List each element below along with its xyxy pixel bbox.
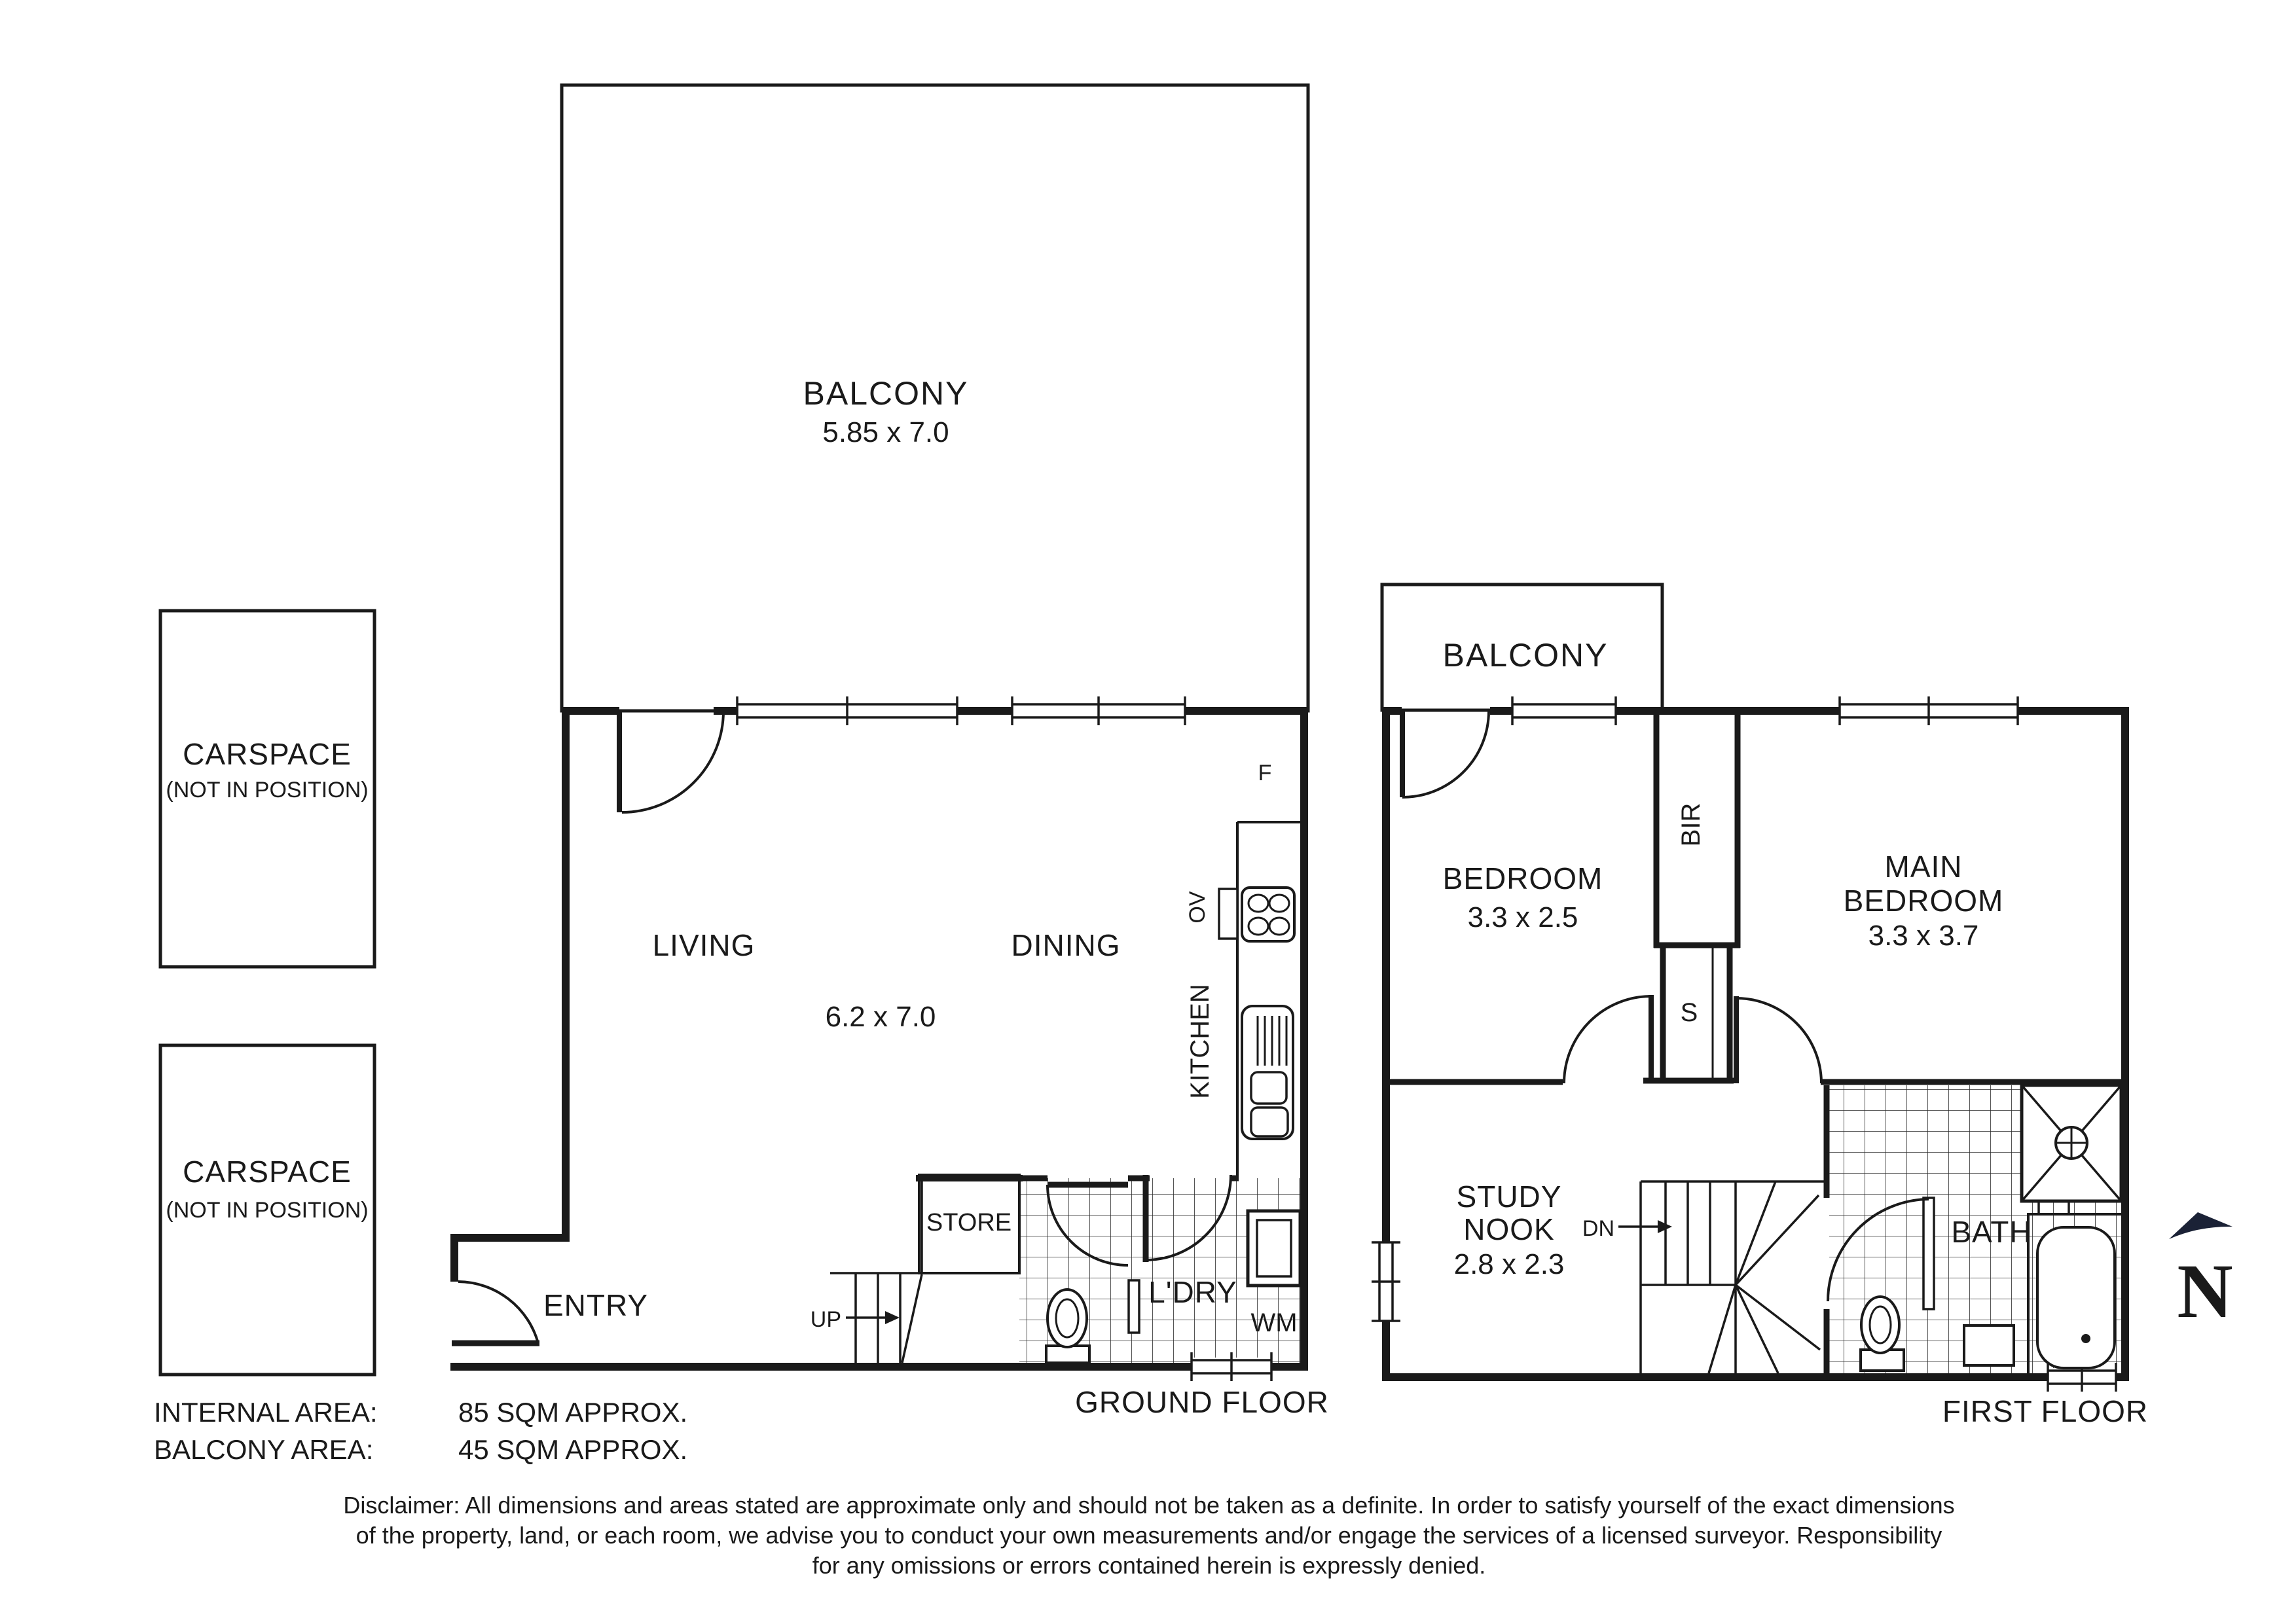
north-arrow-icon [2169, 1212, 2232, 1239]
gf-store-label: STORE [926, 1209, 1011, 1236]
ff-balcony-door [1402, 711, 1489, 797]
disclaimer-line-1: Disclaimer: All dimensions and areas sta… [343, 1492, 1954, 1519]
floor-plan-page: CARSPACE (NOT IN POSITION) CARSPACE (NOT… [0, 0, 2296, 1622]
floor-plan-drawing: CARSPACE (NOT IN POSITION) CARSPACE (NOT… [0, 0, 2296, 1622]
ff-floor-label: FIRST FLOOR [1942, 1394, 2148, 1428]
ff-vanity [1964, 1325, 2014, 1365]
carspace-1-label: CARSPACE [183, 737, 352, 771]
gf-oven-label: OV [1185, 891, 1210, 923]
gf-washing-machine: WM [1248, 1211, 1300, 1337]
carspace-2: CARSPACE (NOT IN POSITION) [160, 1045, 374, 1375]
disclaimer-line-3: for any omissions or errors contained he… [812, 1552, 1486, 1579]
ff-study-label-1: STUDY [1457, 1180, 1562, 1214]
gf-stairs-up: UP [811, 1175, 922, 1363]
ff-balcony-door-arc [1402, 711, 1489, 797]
gf-window-top-left [737, 696, 957, 725]
internal-area-value: 85 SQM APPROX. [458, 1397, 687, 1428]
gf-laundry-label: L'DRY [1148, 1275, 1237, 1309]
ff-main-bedroom-door-arc [1736, 998, 1821, 1083]
gf-balcony-label: BALCONY [803, 375, 969, 412]
balcony-area-label: BALCONY AREA: [154, 1434, 373, 1465]
gf-up-label: UP [811, 1307, 841, 1332]
ff-s-label: S [1681, 998, 1698, 1027]
ff-bedroom-dims: 3.3 x 2.5 [1468, 901, 1578, 933]
carspace-1-sublabel: (NOT IN POSITION) [166, 778, 368, 802]
gf-living-label: LIVING [653, 928, 756, 962]
ff-bath-door-leaf [1923, 1198, 1934, 1309]
first-floor-plan: BALCONY [1372, 585, 2148, 1428]
ff-study-dims: 2.8 x 2.3 [1454, 1248, 1565, 1280]
ff-stairs-down: DN [1582, 1181, 1824, 1373]
ground-floor-plan: BALCONY 5.85 x 7.0 [450, 85, 1329, 1419]
disclaimer: Disclaimer: All dimensions and areas sta… [343, 1492, 1954, 1579]
balcony-area-value: 45 SQM APPROX. [458, 1434, 687, 1465]
gf-window-top-right [1012, 696, 1185, 725]
ff-window-main-bedroom [1840, 696, 2018, 725]
gf-balcony-door-arc [622, 711, 723, 812]
ff-study-label-2: NOOK [1463, 1212, 1554, 1246]
internal-area-label: INTERNAL AREA: [154, 1397, 378, 1428]
gf-kitchen-label: KITCHEN [1186, 984, 1214, 1099]
gf-entry-label: ENTRY [543, 1288, 648, 1322]
gf-up-arrow-head [885, 1311, 900, 1324]
north-letter: N [2177, 1248, 2232, 1334]
gf-wc-slider [1129, 1280, 1139, 1333]
gf-entry-door-arc [458, 1282, 538, 1343]
ff-s-cupboard: S [1643, 948, 1734, 1081]
ff-main-bedroom-label-2: BEDROOM [1844, 884, 2004, 918]
area-summary: INTERNAL AREA: 85 SQM APPROX. BALCONY AR… [154, 1397, 687, 1465]
gf-floor-label: GROUND FLOOR [1075, 1385, 1329, 1419]
gf-store: STORE [916, 1175, 1023, 1273]
ff-main-bedroom-dims: 3.3 x 3.7 [1868, 920, 1979, 952]
ff-dn-label: DN [1582, 1216, 1614, 1241]
gf-living-dining-dims: 6.2 x 7.0 [826, 1001, 936, 1033]
gf-balcony-dims: 5.85 x 7.0 [822, 416, 949, 448]
gf-fridge-label: F [1258, 761, 1272, 785]
gf-dining-label: DINING [1011, 928, 1121, 962]
ff-bathtub-drain [2081, 1334, 2090, 1343]
ff-bir-label: BIR [1677, 803, 1705, 847]
gf-balcony-door [619, 711, 723, 812]
gf-toilet [1046, 1289, 1089, 1363]
ff-bedroom-door-arc [1564, 996, 1651, 1083]
ff-bath-label: BATH [1951, 1215, 2032, 1249]
gf-wm-label: WM [1250, 1308, 1297, 1337]
ff-balcony-label: BALCONY [1443, 637, 1609, 674]
carspace-1: CARSPACE (NOT IN POSITION) [160, 611, 374, 967]
ff-window-study [1372, 1242, 1400, 1321]
gf-oven-box [1219, 889, 1237, 939]
disclaimer-line-2: of the property, land, or each room, we … [356, 1522, 1942, 1549]
ff-main-bedroom-label-1: MAIN [1885, 850, 1963, 884]
ff-main-bedroom-door [1736, 996, 1821, 1083]
ff-shower [2022, 1085, 2121, 1201]
gf-sink [1242, 1006, 1293, 1139]
gf-kitchen: F OV KITCHEN [1185, 761, 1300, 1178]
ff-bedroom-label: BEDROOM [1443, 861, 1603, 895]
north-compass: N [2169, 1212, 2233, 1334]
ff-window-bedroom [1512, 696, 1616, 725]
gf-entry-door [452, 1282, 539, 1343]
carspace-2-sublabel: (NOT IN POSITION) [166, 1198, 368, 1223]
ff-bedroom-door [1564, 995, 1651, 1083]
carspace-2-label: CARSPACE [183, 1155, 352, 1189]
